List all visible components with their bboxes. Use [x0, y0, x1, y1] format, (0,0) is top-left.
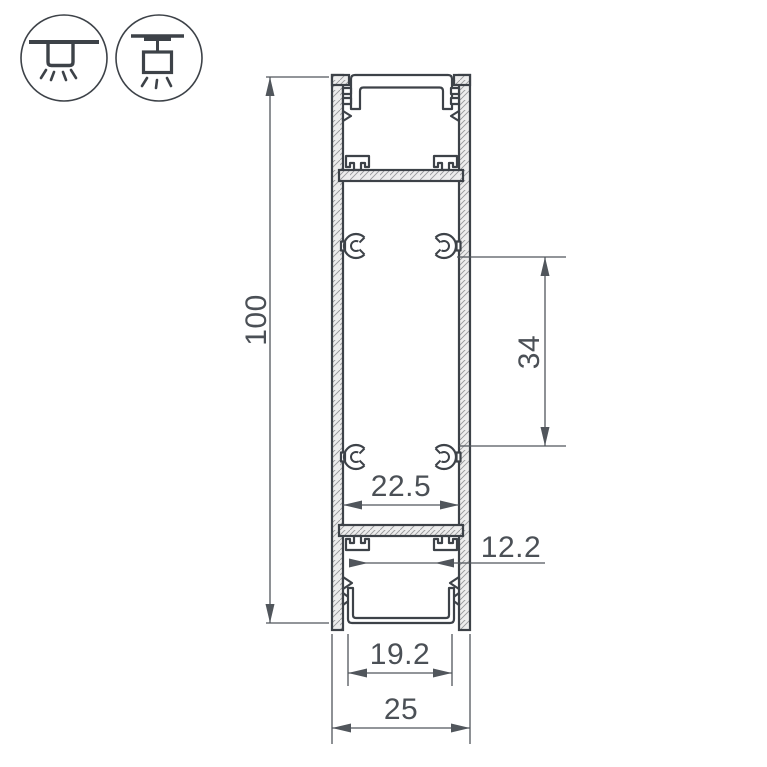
arrowhead [541, 427, 550, 446]
wall-claw [451, 98, 459, 104]
wall-claw [343, 111, 351, 121]
recessed-mount-icon [21, 15, 107, 101]
light-ray [142, 78, 147, 86]
light-ray [41, 70, 46, 78]
icon-circle [116, 15, 202, 101]
dim-label-hook-spacing: 12.2 [481, 531, 541, 564]
light-ray [156, 80, 157, 88]
light-ray [167, 78, 171, 86]
upper-partition [339, 170, 463, 181]
light-ray [63, 72, 66, 80]
mount-hook-lower-right [434, 536, 457, 550]
top-corner-block-left [332, 75, 349, 85]
dim-label-inner-width: 22.5 [371, 470, 431, 503]
mount-hook-upper-right [434, 156, 457, 170]
profile-left-wall [332, 75, 343, 630]
icon-circle [21, 15, 107, 101]
wall-claw [451, 111, 459, 121]
arrowhead [451, 724, 470, 733]
profile-cross-section [332, 75, 470, 630]
dim-label-overall-height: 100 [240, 294, 273, 346]
top-cover [351, 75, 452, 109]
mount-hook-lower-left [346, 536, 369, 550]
light-ray [51, 72, 54, 80]
screw-boss-upper-left [341, 234, 368, 258]
fixture-box [144, 52, 172, 73]
pendant-mount-icon [116, 15, 202, 101]
wall-claw [343, 98, 351, 104]
mount-plate [144, 37, 171, 42]
dim-opening-width: 19.2 [348, 634, 452, 686]
dim-inner-width: 22.5 [343, 470, 459, 510]
arrowhead [349, 559, 368, 568]
dim-label-overall-width: 25 [384, 693, 418, 726]
dim-label-boss-spacing: 34 [513, 335, 546, 369]
profile-drawing-canvas: 100 34 22.5 12.2 19.2 25 [0, 0, 767, 767]
fixture-box [48, 42, 73, 66]
wall-claw [451, 88, 459, 94]
arrowhead [266, 77, 275, 96]
screw-boss-lower-left [341, 445, 368, 469]
arrowhead [440, 501, 459, 510]
profile-right-wall [459, 75, 470, 630]
arrowhead [541, 257, 550, 276]
dim-boss-spacing: 34 [457, 257, 566, 446]
light-ray [71, 70, 76, 78]
top-corner-block-right [454, 75, 470, 85]
mount-hook-upper-left [346, 156, 369, 170]
dim-label-opening-width: 19.2 [370, 638, 430, 671]
light-rays [142, 78, 171, 88]
arrowhead [433, 669, 452, 678]
diffuser [348, 588, 454, 623]
arrowhead [343, 501, 362, 510]
wall-claw [343, 88, 351, 94]
screw-boss-upper-right [432, 234, 461, 258]
arrowhead [435, 559, 454, 568]
light-rays [41, 70, 76, 80]
wall-claws-bottom [343, 577, 459, 605]
arrowhead [332, 724, 351, 733]
lower-partition [339, 525, 463, 536]
dim-overall-height: 100 [240, 77, 329, 623]
screw-boss-lower-right [432, 445, 461, 469]
arrowhead [348, 669, 367, 678]
arrowhead [266, 604, 275, 623]
